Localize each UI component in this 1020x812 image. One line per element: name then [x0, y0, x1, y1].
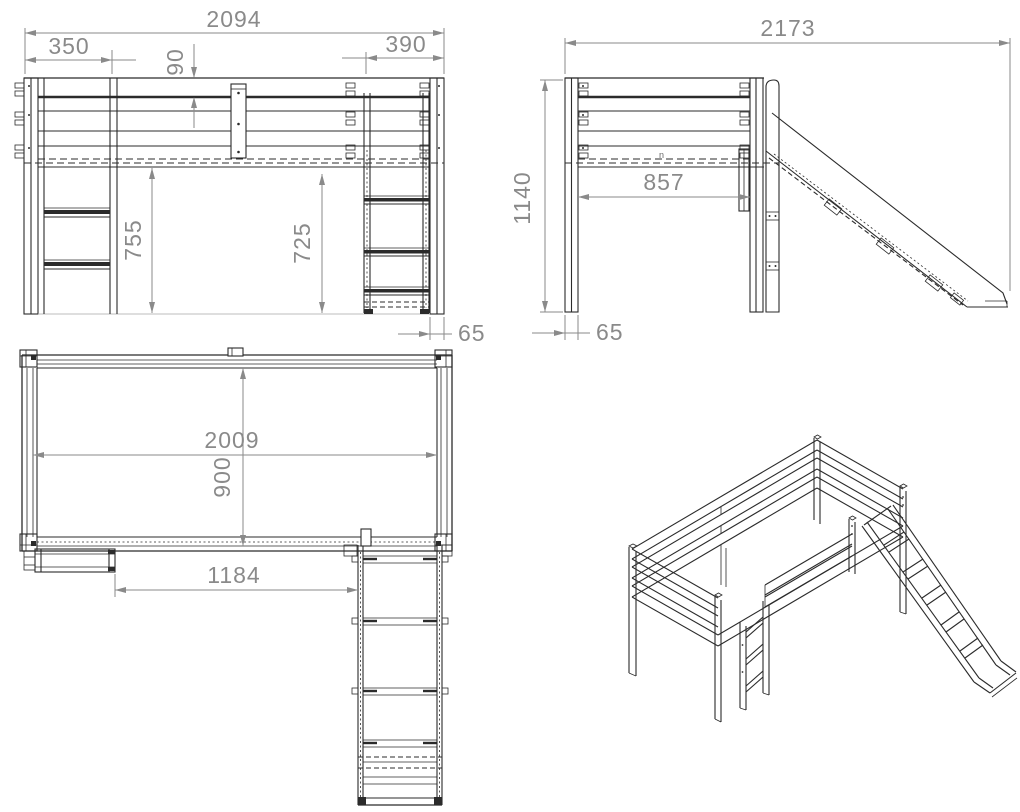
- technical-drawing-sheet: 2094 350 390 90 755 72: [0, 0, 1020, 812]
- dim-overall-depth: 2173: [565, 15, 1010, 291]
- dim-bed-width: 900: [209, 368, 246, 546]
- iso-right-rails: [817, 440, 903, 537]
- dim-label-clearance-right: 725: [289, 222, 315, 263]
- dim-post-depth-side: 65: [532, 315, 624, 345]
- side-slide-rail-board: [766, 80, 779, 312]
- plan-slide-step: [363, 740, 437, 747]
- plan-slide-step: [352, 618, 448, 625]
- dim-label-bed-width: 900: [209, 456, 235, 497]
- plan-slide: [344, 529, 452, 805]
- dim-label-post-width-front: 65: [458, 320, 486, 346]
- front-center-post: [231, 84, 246, 158]
- dim-post-spacing: 857: [578, 169, 750, 200]
- front-slide-ladder: [346, 83, 429, 314]
- iso-view: [629, 435, 1017, 722]
- plan-slide-step: [352, 556, 448, 563]
- plan-center-post: [228, 348, 243, 356]
- side-slide: [766, 113, 1008, 307]
- dim-bed-length: 2009: [33, 427, 437, 458]
- plan-view: 2009 900 1184: [20, 348, 452, 805]
- dim-slide-ladder-width: 390: [342, 31, 444, 74]
- iso-front-guard-rail: [765, 534, 852, 607]
- dim-top-rail-plank: 90: [162, 44, 197, 128]
- dim-label-clearance-left: 755: [120, 219, 146, 260]
- iso-ladder: [740, 601, 769, 710]
- dim-label-slide-ladder-width: 390: [385, 31, 426, 57]
- iso-head-rails: [632, 549, 718, 646]
- dim-label-post-depth-side: 65: [596, 319, 624, 345]
- dim-ladder-width: 350: [25, 33, 136, 74]
- plan-guard-post: [361, 529, 371, 546]
- side-view: n 2173: [509, 15, 1010, 345]
- dim-label-top-rail-plank: 90: [162, 48, 188, 76]
- dim-label-ladder-to-slide: 1184: [207, 562, 260, 588]
- front-view: 2094 350 390 90 755 72: [15, 6, 486, 346]
- front-slide-steps: [364, 196, 429, 314]
- iso-back-rails: [632, 440, 817, 597]
- front-ladder: [44, 78, 117, 314]
- dim-overall-height: 1140: [509, 80, 563, 312]
- dim-ladder-to-slide: 1184: [115, 562, 358, 597]
- plan-slide-step: [352, 688, 448, 695]
- iso-slide: [862, 505, 1017, 697]
- surface-mark: n: [659, 150, 664, 160]
- dim-label-overall-depth: 2173: [760, 15, 815, 41]
- dim-clearance-right: 725: [289, 174, 325, 313]
- dim-label-post-spacing: 857: [643, 169, 684, 195]
- dim-clearance-left: 755: [120, 168, 155, 313]
- front-slide-hardware: [346, 83, 355, 158]
- plan-ladder: [24, 549, 115, 572]
- side-hardware: [579, 83, 749, 158]
- loft-bed-drawing: 2094 350 390 90 755 72: [0, 0, 1020, 812]
- dim-label-overall-width: 2094: [206, 6, 261, 32]
- dim-label-overall-height: 1140: [509, 171, 535, 224]
- front-left-hardware: [15, 83, 30, 158]
- dim-label-ladder-width: 350: [48, 33, 89, 59]
- dim-post-width-front: 65: [398, 317, 486, 346]
- dim-label-bed-length: 2009: [204, 427, 259, 453]
- side-bed-geometry: n: [565, 78, 779, 312]
